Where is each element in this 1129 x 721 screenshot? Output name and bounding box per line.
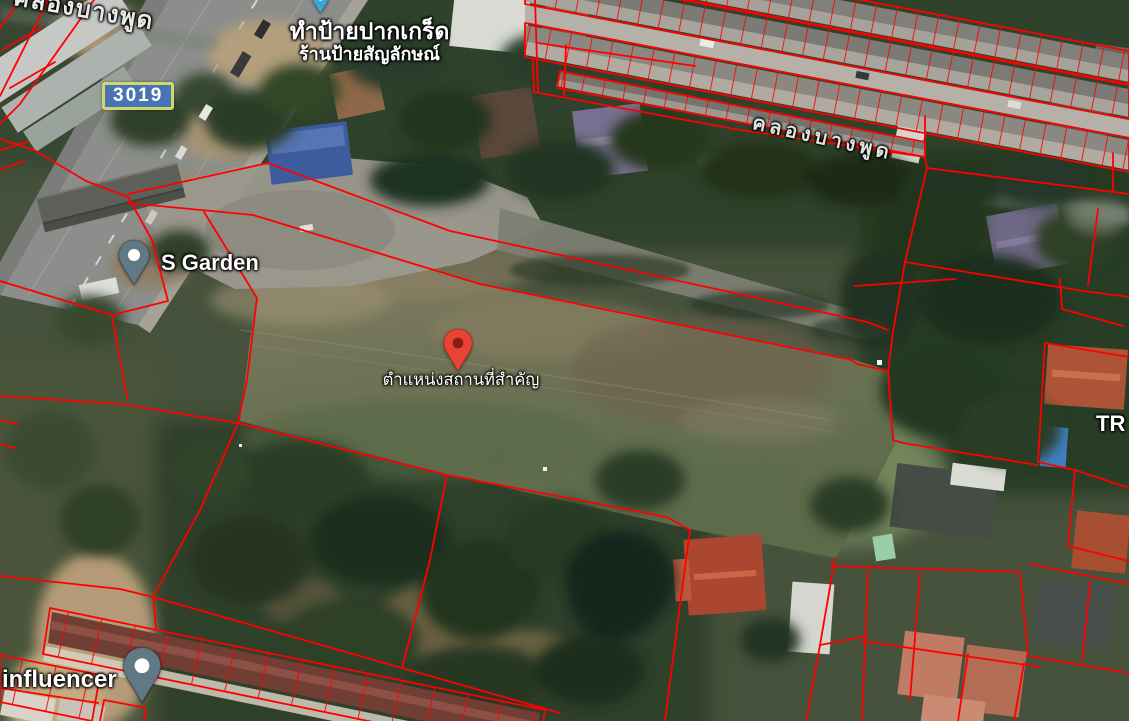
pin-dot: [135, 658, 150, 673]
poi-label-truncated-right[interactable]: TR: [1096, 411, 1125, 436]
pin-body: [119, 240, 149, 285]
poi-subtitle: ร้านป้ายสัญลักษณ์: [272, 44, 467, 65]
route-badge-3019: 3019: [102, 82, 174, 110]
map-canvas[interactable]: คลองบางพูด คลองบางพูด 3019 ทำป้ายปากเกร็…: [0, 0, 1129, 721]
sign-shop-pin-icon[interactable]: [312, 0, 329, 14]
poi-title: ทำป้ายปากเกร็ด: [272, 18, 467, 44]
poi-label-s-garden[interactable]: S Garden: [161, 250, 259, 275]
destination-marker-pin[interactable]: [443, 328, 473, 372]
pin-body: [312, 0, 328, 13]
poi-label-influencer[interactable]: influencer: [2, 666, 117, 694]
pin-body: [123, 647, 160, 702]
influencer-pin-icon[interactable]: [122, 646, 162, 704]
pin-dot: [453, 338, 464, 349]
poi-label-sign-shop[interactable]: ทำป้ายปากเกร็ด ร้านป้ายสัญลักษณ์: [272, 18, 467, 65]
s-garden-pin-icon[interactable]: [118, 239, 150, 286]
pin-dot: [128, 249, 140, 261]
pin-body: [444, 329, 472, 371]
destination-marker-caption: ตำแหน่งสถานที่สำคัญ: [366, 371, 556, 390]
